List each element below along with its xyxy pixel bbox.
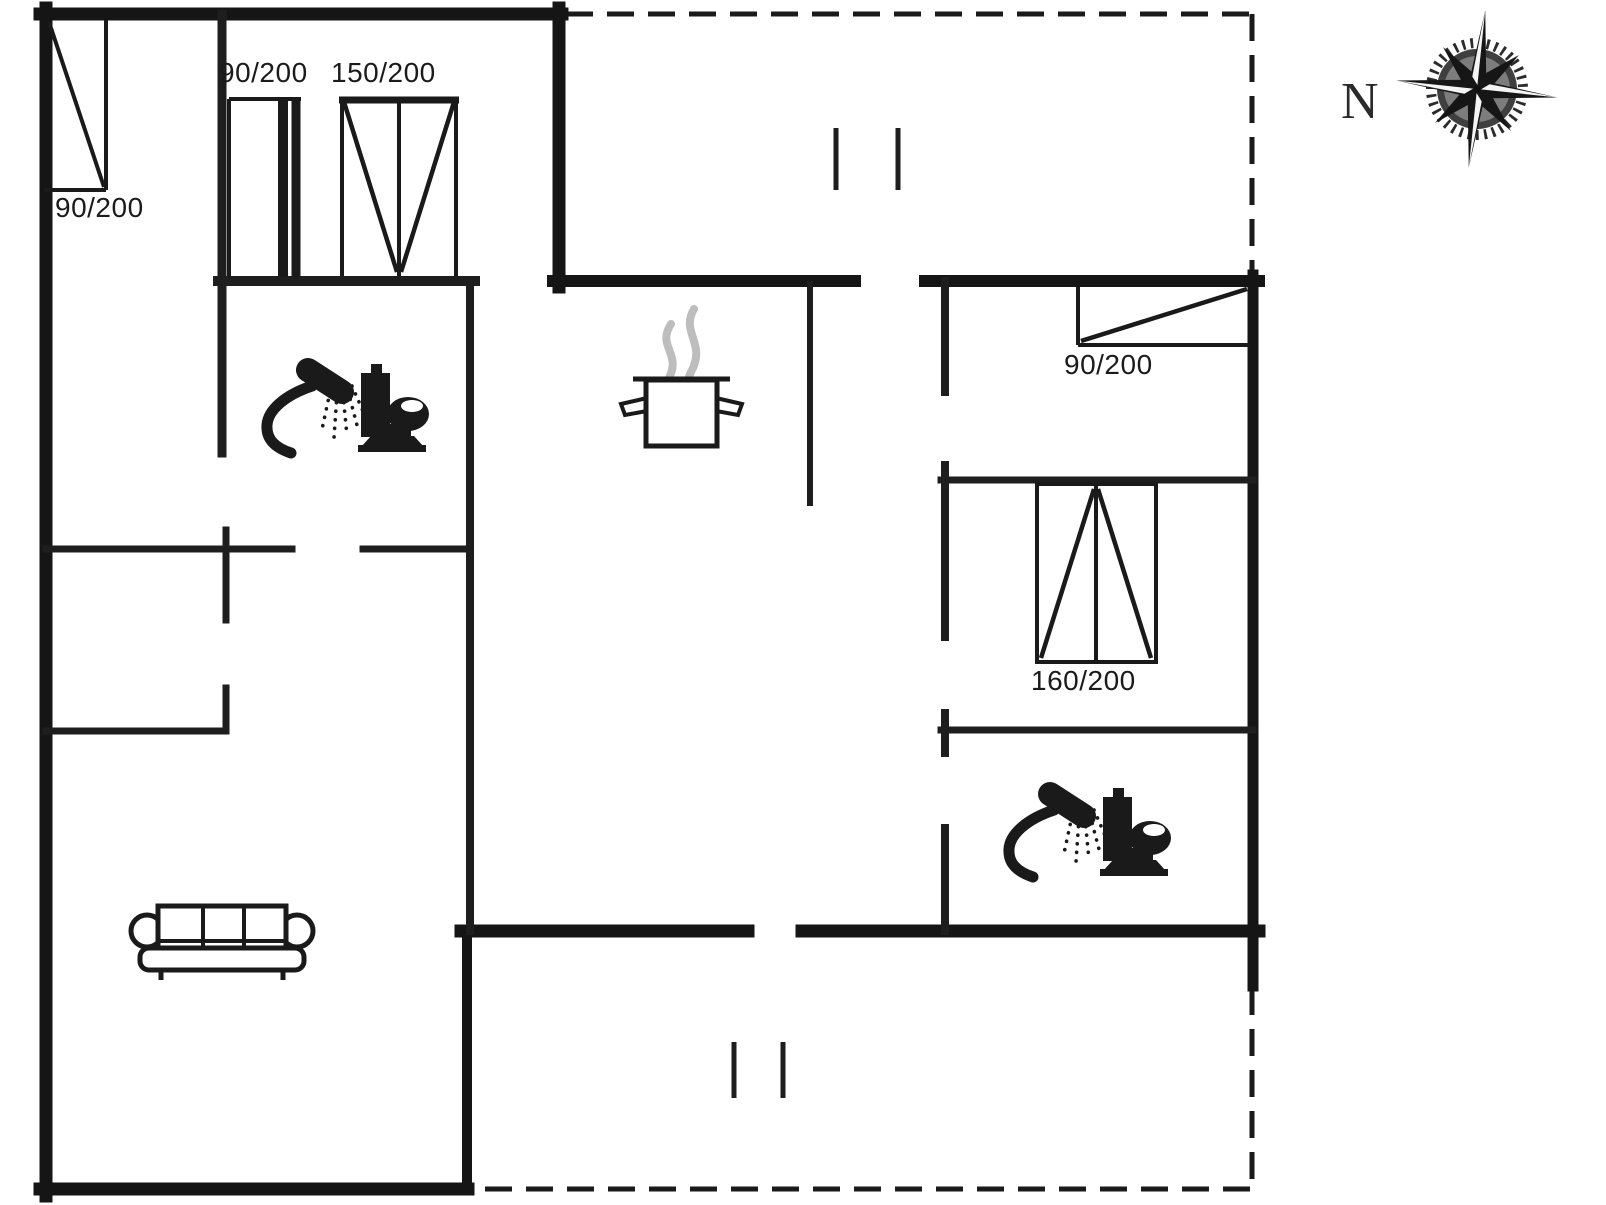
sofa-base [140, 948, 304, 970]
label-window-150: 150/200 [331, 57, 436, 89]
entrance-door-symbol [44, 20, 106, 190]
window-150x200-symbol [339, 100, 459, 276]
bathroom-icons-right [1009, 788, 1171, 877]
bathroom-icons-left [267, 364, 429, 453]
window-90x200-symbol [1078, 287, 1249, 345]
interior-door-symbol [229, 99, 301, 277]
label-interior-door: 90/200 [219, 57, 308, 89]
kitchen-pot-icon [621, 309, 742, 446]
bed-diagonal-left [1041, 489, 1094, 658]
floor-plan-canvas [0, 0, 1606, 1205]
pot-handle-left [621, 398, 647, 415]
window-sash-diagonal [1081, 289, 1247, 341]
pot-handle-right [716, 398, 742, 415]
window-sash-diagonal-right [401, 102, 454, 272]
window-sash-diagonal-left [344, 102, 397, 272]
label-entrance-door: 90/200 [55, 192, 144, 224]
bed-160x200-symbol [1037, 484, 1156, 662]
floor-plan: 90/200 90/200 150/200 90/200 160/200 N [0, 0, 1606, 1205]
bed-diagonal-right [1098, 489, 1151, 658]
compass-north-label: N [1341, 72, 1379, 131]
pot-body [646, 380, 717, 446]
door-swing-diagonal [49, 22, 104, 187]
compass-rose-icon [1388, 2, 1566, 176]
sofa-icon [131, 906, 313, 980]
label-window-right-90: 90/200 [1064, 349, 1153, 381]
label-bed-160: 160/200 [1031, 665, 1136, 697]
opening-ticks [734, 128, 898, 1098]
